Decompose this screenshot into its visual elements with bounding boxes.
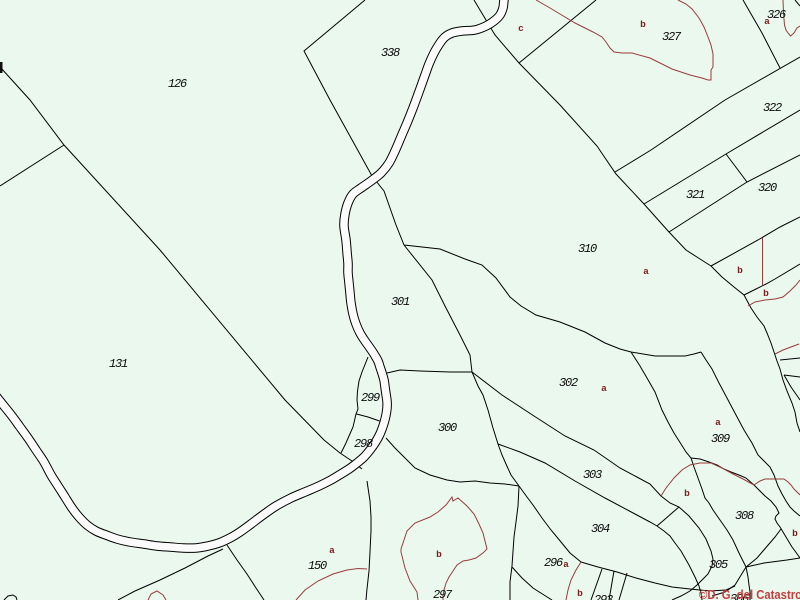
svg-text:b: b bbox=[436, 549, 442, 560]
svg-text:b: b bbox=[792, 528, 798, 539]
svg-text:a: a bbox=[764, 16, 770, 27]
svg-text:303: 303 bbox=[583, 468, 602, 482]
svg-text:a: a bbox=[643, 266, 649, 277]
svg-text:b: b bbox=[763, 288, 769, 299]
svg-text:300: 300 bbox=[438, 421, 457, 435]
svg-text:320: 320 bbox=[758, 181, 777, 195]
svg-text:304: 304 bbox=[591, 522, 610, 536]
svg-text:322: 322 bbox=[763, 101, 782, 115]
svg-text:302: 302 bbox=[559, 376, 578, 390]
svg-text:297: 297 bbox=[433, 588, 453, 600]
svg-text:a: a bbox=[715, 417, 721, 428]
svg-text:a: a bbox=[329, 545, 335, 556]
svg-text:296: 296 bbox=[544, 556, 563, 570]
svg-text:b: b bbox=[684, 488, 690, 499]
svg-text:327: 327 bbox=[662, 30, 682, 44]
svg-text:309: 309 bbox=[711, 432, 730, 446]
svg-text:a: a bbox=[563, 559, 569, 570]
svg-text:b: b bbox=[737, 265, 743, 276]
svg-text:305: 305 bbox=[709, 558, 728, 572]
svg-text:301: 301 bbox=[391, 295, 410, 309]
svg-text:338: 338 bbox=[381, 46, 400, 60]
svg-text:a: a bbox=[601, 383, 607, 394]
svg-text:126: 126 bbox=[168, 77, 187, 91]
svg-text:308: 308 bbox=[735, 509, 754, 523]
svg-text:321: 321 bbox=[686, 188, 705, 202]
svg-text:293: 293 bbox=[594, 593, 613, 600]
svg-text:298: 298 bbox=[354, 437, 373, 451]
svg-text:b: b bbox=[640, 19, 646, 30]
svg-text:150: 150 bbox=[308, 559, 327, 573]
svg-text:299: 299 bbox=[361, 391, 380, 405]
svg-text:131: 131 bbox=[109, 357, 128, 371]
svg-text:b: b bbox=[577, 588, 583, 599]
svg-text:310: 310 bbox=[578, 242, 597, 256]
svg-text:©D. G. del Catastro: ©D. G. del Catastro bbox=[699, 587, 800, 600]
svg-text:c: c bbox=[518, 23, 524, 34]
